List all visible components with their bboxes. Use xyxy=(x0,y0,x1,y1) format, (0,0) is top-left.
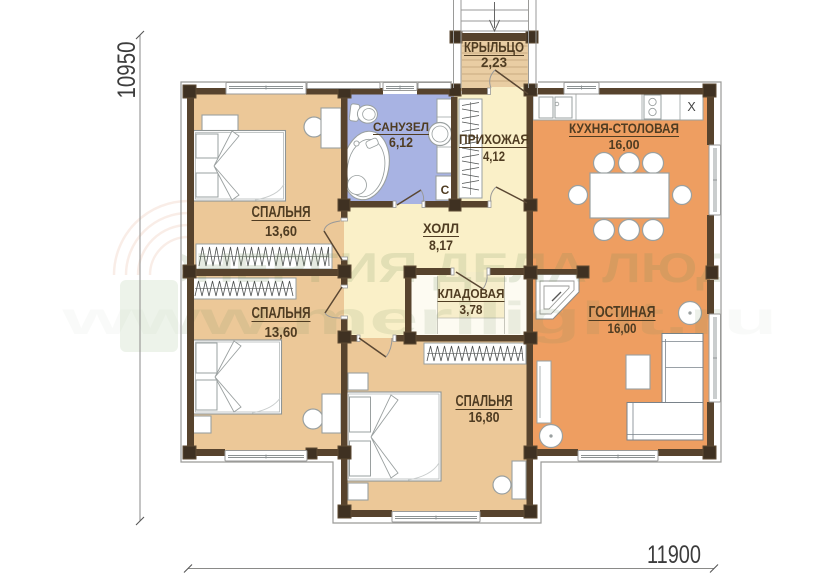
svg-text:ПРИХОЖАЯ: ПРИХОЖАЯ xyxy=(459,131,529,147)
svg-text:САНУЗЕЛ: САНУЗЕЛ xyxy=(373,120,429,134)
svg-text:16,00: 16,00 xyxy=(609,137,640,152)
svg-text:ГОСТИНАЯ: ГОСТИНАЯ xyxy=(589,304,656,321)
svg-text:8,17: 8,17 xyxy=(429,237,453,253)
svg-text:10950: 10950 xyxy=(113,42,141,99)
svg-text:4,12: 4,12 xyxy=(483,148,505,164)
svg-text:2,23: 2,23 xyxy=(481,54,507,70)
svg-text:СПАЛЬНЯ: СПАЛЬНЯ xyxy=(252,204,311,221)
svg-text:СПАЛЬНЯ: СПАЛЬНЯ xyxy=(456,393,513,410)
svg-text:ХОЛЛ: ХОЛЛ xyxy=(423,220,459,236)
svg-text:СПАЛЬНЯ: СПАЛЬНЯ xyxy=(252,305,311,322)
svg-text:С: С xyxy=(441,183,450,197)
svg-text:3,78: 3,78 xyxy=(460,303,483,317)
svg-text:КУХНЯ-СТОЛОВАЯ: КУХНЯ-СТОЛОВАЯ xyxy=(569,120,679,136)
svg-text:16,00: 16,00 xyxy=(608,321,637,336)
svg-text:X: X xyxy=(687,100,696,114)
svg-text:16,80: 16,80 xyxy=(469,410,500,426)
svg-text:11900: 11900 xyxy=(647,541,701,569)
svg-text:КЛАДОВАЯ: КЛАДОВАЯ xyxy=(438,286,505,301)
svg-text:6,12: 6,12 xyxy=(389,135,413,150)
svg-text:13,60: 13,60 xyxy=(265,224,297,240)
svg-text:13,60: 13,60 xyxy=(265,325,298,341)
